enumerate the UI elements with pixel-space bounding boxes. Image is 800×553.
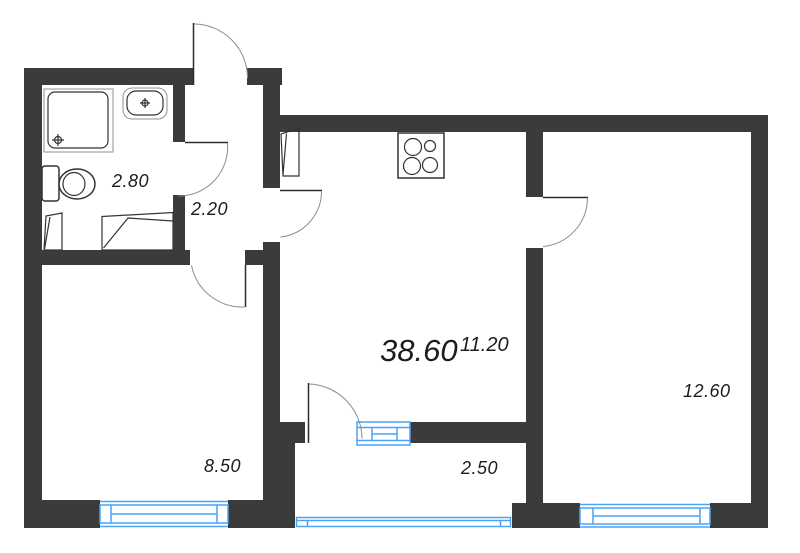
wall-segment xyxy=(173,195,185,250)
shower-tray xyxy=(44,89,113,152)
walls xyxy=(24,68,768,528)
wall-segment xyxy=(710,503,768,528)
door-arc xyxy=(309,384,362,439)
door-arc xyxy=(281,191,322,237)
wall-segment xyxy=(410,422,543,443)
wall-segment xyxy=(173,85,185,142)
floor-plan: 2.80 2.20 38.60 11.20 12.60 8.50 2.50 xyxy=(0,0,800,553)
living-room-door xyxy=(280,191,322,238)
area-label-hallway: 2.20 xyxy=(191,199,228,220)
room-left-door xyxy=(192,265,246,307)
area-label-room-right: 12.60 xyxy=(683,381,731,402)
wall-segment xyxy=(263,443,295,528)
wardrobe-outline xyxy=(281,128,299,176)
area-label-balcony: 2.50 xyxy=(461,458,498,479)
area-label-room-left: 8.50 xyxy=(204,456,241,477)
sink-icon xyxy=(123,88,167,119)
wardrobe-icon xyxy=(102,213,173,251)
wardrobe-outline xyxy=(44,213,62,250)
wall-segment xyxy=(263,85,280,188)
door-arc xyxy=(192,266,246,308)
toilet-tank xyxy=(42,166,59,201)
wall-segment xyxy=(247,68,282,85)
wall-segment xyxy=(263,242,280,422)
window-room-left xyxy=(100,502,228,527)
wall-segment xyxy=(526,248,543,503)
toilet-icon xyxy=(42,166,95,201)
area-label-kitchen-living: 11.20 xyxy=(460,334,509,357)
shower-icon xyxy=(44,89,113,152)
floor-plan-drawing xyxy=(0,0,800,553)
entry-door xyxy=(194,23,248,85)
door-arc xyxy=(543,198,588,247)
area-label-bathroom: 2.80 xyxy=(112,171,149,192)
area-label-total: 38.60 xyxy=(380,333,458,369)
wardrobe-outline xyxy=(102,213,173,251)
wall-segment xyxy=(24,68,42,528)
wardrobe-icon xyxy=(281,128,299,176)
wall-segment xyxy=(24,500,100,528)
window-room-right xyxy=(580,505,710,528)
bathroom-door xyxy=(179,143,229,197)
wall-segment xyxy=(751,115,768,528)
stove-icon xyxy=(398,133,444,178)
wall-segment xyxy=(24,68,193,85)
wall-segment xyxy=(512,503,580,528)
balcony-glazing xyxy=(296,517,511,527)
balcony-door-window xyxy=(357,422,410,445)
wall-segment xyxy=(42,250,190,265)
wall-segment xyxy=(526,131,543,197)
balcony-door xyxy=(309,383,363,443)
door-arc xyxy=(179,143,228,196)
wardrobe-icon xyxy=(44,213,62,250)
room-right-door xyxy=(543,198,588,247)
wall-segment xyxy=(245,250,280,265)
door-arc xyxy=(194,24,248,78)
wall-segment xyxy=(263,422,305,443)
wall-segment xyxy=(263,115,768,132)
